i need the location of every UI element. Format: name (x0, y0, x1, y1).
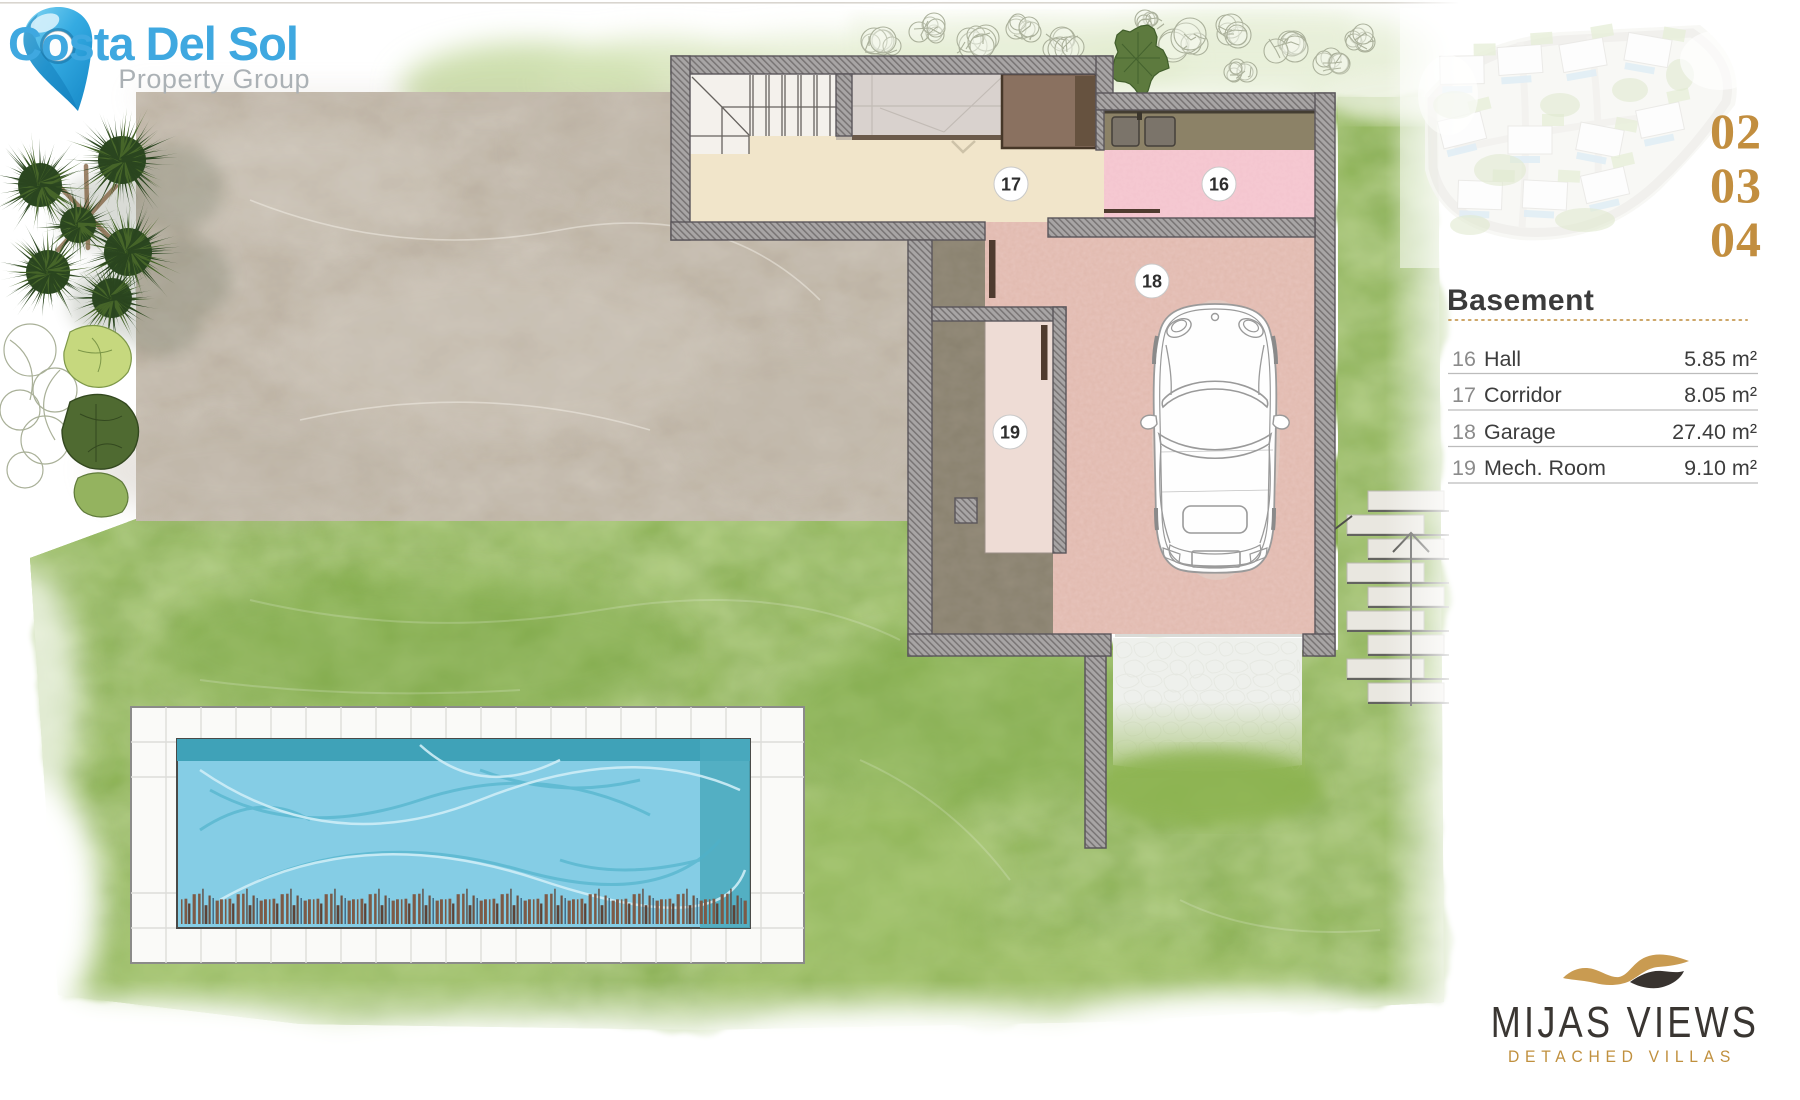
svg-text:18: 18 (1452, 420, 1476, 444)
svg-text:8.05 m²: 8.05 m² (1684, 383, 1757, 407)
svg-text:Costa Del Sol: Costa Del Sol (8, 17, 298, 70)
svg-text:03: 03 (1710, 157, 1762, 213)
svg-text:Mech. Room: Mech. Room (1484, 456, 1606, 480)
svg-text:17: 17 (1001, 175, 1021, 195)
svg-text:16: 16 (1452, 347, 1476, 371)
svg-text:02: 02 (1710, 103, 1762, 159)
svg-text:Garage: Garage (1484, 420, 1556, 444)
svg-text:Corridor: Corridor (1484, 383, 1562, 407)
svg-text:16: 16 (1209, 175, 1229, 195)
svg-text:19: 19 (1000, 423, 1020, 443)
svg-text:17: 17 (1452, 383, 1476, 407)
svg-text:27.40 m²: 27.40 m² (1672, 420, 1757, 444)
svg-text:MIJAS VIEWS: MIJAS VIEWS (1491, 998, 1760, 1047)
svg-text:5.85 m²: 5.85 m² (1684, 347, 1757, 371)
svg-text:18: 18 (1142, 272, 1162, 292)
svg-text:Property Group: Property Group (118, 64, 310, 94)
svg-text:Hall: Hall (1484, 347, 1521, 371)
svg-text:Basement: Basement (1447, 284, 1594, 317)
svg-text:9.10 m²: 9.10 m² (1684, 456, 1757, 480)
svg-text:19: 19 (1452, 456, 1476, 480)
svg-text:DETACHED VILLAS: DETACHED VILLAS (1508, 1048, 1736, 1066)
svg-text:04: 04 (1710, 211, 1762, 267)
